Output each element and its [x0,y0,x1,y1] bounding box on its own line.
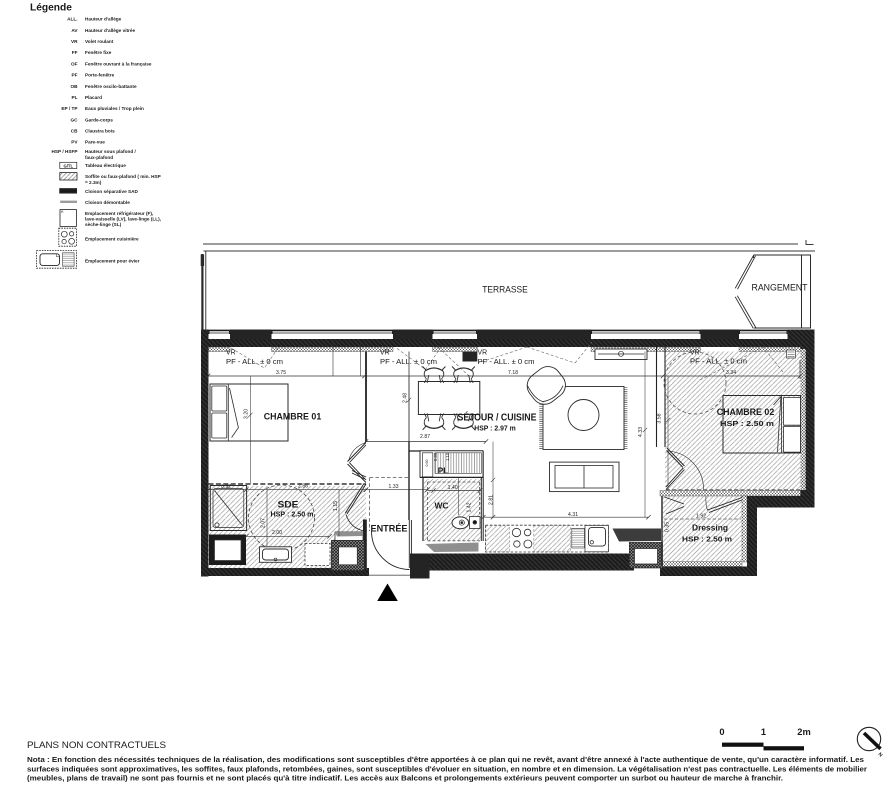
svg-text:Emplacement pour évier: Emplacement pour évier [85,258,140,263]
svg-text:Cloison démontable: Cloison démontable [85,200,130,205]
svg-text:Nota : En fonction des nécessi: Nota : En fonction des nécessités techni… [27,757,864,764]
svg-text:1.40: 1.40 [448,485,458,491]
svg-text:CHAMBRE 02: CHAMBRE 02 [717,407,775,417]
svg-text:FF: FF [72,50,78,55]
svg-text:TERRASSE: TERRASSE [482,285,528,295]
svg-text:SDE: SDE [278,500,299,510]
svg-text:2m: 2m [797,727,810,737]
svg-text:Pare-vue: Pare-vue [85,140,105,145]
svg-text:VR: VR [478,350,488,357]
svg-text:3.58: 3.58 [657,413,663,423]
svg-text:Dressing: Dressing [692,523,728,533]
svg-text:2.86: 2.86 [298,484,308,490]
svg-text:AV: AV [71,28,78,33]
svg-text:VR: VR [380,350,390,357]
svg-text:1.42: 1.42 [467,502,473,512]
svg-text:surfaces indiquées sont approx: surfaces indiquées sont approximatives, … [27,766,867,773]
svg-text:3.34: 3.34 [726,370,736,376]
svg-text:GC: GC [70,117,78,122]
svg-text:G/TL: G/TL [64,163,74,168]
svg-text:Claustra bois: Claustra bois [85,129,115,134]
svg-text:Hauteur d'allège vitrée: Hauteur d'allège vitrée [85,28,135,33]
svg-text:2.07: 2.07 [261,518,267,528]
svg-text:Fenêtre oscilo-battante: Fenêtre oscilo-battante [85,84,137,89]
svg-text:PV: PV [71,140,78,145]
svg-text:2.87: 2.87 [420,434,430,440]
svg-text:Hauteur sous plafond /: Hauteur sous plafond / [85,149,136,154]
svg-text:Fenêtre ouvrant à la française: Fenêtre ouvrant à la française [85,61,152,66]
svg-text:1.10: 1.10 [445,452,450,461]
svg-text:0.35: 0.35 [665,522,671,532]
svg-text:RANGEMENT: RANGEMENT [752,283,808,293]
svg-text:CB: CB [71,129,78,134]
svg-text:OB: OB [70,84,78,89]
svg-text:1.15: 1.15 [333,501,339,511]
svg-text:OF: OF [71,61,78,66]
svg-text:PLANS NON CONTRACTUELS: PLANS NON CONTRACTUELS [27,739,166,750]
svg-text:7.18: 7.18 [508,370,518,376]
svg-text:Cloison séparative SAD: Cloison séparative SAD [85,189,138,194]
svg-text:1.33: 1.33 [389,484,399,490]
svg-text:HSP : 2.97 m: HSP : 2.97 m [474,424,516,433]
svg-text:2.00: 2.00 [272,530,282,536]
svg-text:Volet roulant: Volet roulant [85,39,114,44]
svg-text:PF - ALL. ± 0 cm: PF - ALL. ± 0 cm [690,359,747,366]
svg-text:PF - ALL. ± 0 cm: PF - ALL. ± 0 cm [380,359,437,366]
svg-text:VR: VR [71,39,78,44]
svg-text:(meubles, plans de travail) ne: (meubles, plans de travail) ne sont pas … [27,776,783,783]
svg-text:Fenêtre fixe: Fenêtre fixe [85,50,112,55]
svg-text:PL: PL [438,467,448,476]
svg-text:HSP : 2.50 m: HSP : 2.50 m [271,510,314,519]
svg-text:0.60: 0.60 [425,460,429,467]
svg-text:Placard: Placard [85,95,102,100]
svg-text:HSP : 2.50 m: HSP : 2.50 m [720,419,774,428]
svg-text:PL: PL [72,95,78,100]
svg-text:SÉJOUR / CUISINE: SÉJOUR / CUISINE [458,411,537,424]
svg-text:CHAMBRE 01: CHAMBRE 01 [264,412,322,422]
svg-text:Emplacement réfrigérateur (F),: Emplacement réfrigérateur (F), [85,211,153,216]
svg-text:4.33: 4.33 [638,427,644,437]
svg-text:0.92: 0.92 [221,484,231,490]
svg-text:2.48: 2.48 [403,393,409,403]
svg-text:Porte-fenêtre: Porte-fenêtre [85,73,115,78]
svg-text:VR: VR [226,350,236,357]
svg-text:faux-plafond: faux-plafond [85,155,113,160]
svg-text:lave-vaisselle (LV), lave-ling: lave-vaisselle (LV), lave-linge (LL), [85,216,161,221]
svg-text:EP / TP: EP / TP [61,106,77,111]
svg-text:3.75: 3.75 [276,370,286,376]
svg-text:HSP / HSFP: HSP / HSFP [52,149,78,154]
svg-text:sèche-linge (SL): sèche-linge (SL) [85,222,122,227]
svg-text:WC: WC [435,501,449,511]
svg-text:PF: PF [72,73,78,78]
svg-text:1.92: 1.92 [696,513,706,519]
svg-text:PF - ALL. ± 0 cm: PF - ALL. ± 0 cm [226,359,283,366]
svg-text:= 2.3m): = 2.3m) [85,180,102,185]
svg-text:Emplacement cuisinière: Emplacement cuisinière [85,236,139,241]
svg-text:4.31: 4.31 [568,512,578,518]
svg-text:Légende: Légende [30,3,72,14]
svg-text:ENTRÉE: ENTRÉE [371,524,408,534]
svg-text:ALL.: ALL. [67,17,77,22]
svg-text:1: 1 [761,727,766,737]
svg-text:Eaux pluviales / Trop plein: Eaux pluviales / Trop plein [85,106,144,111]
svg-text:Tableau électrique: Tableau électrique [85,163,126,168]
svg-text:2.81: 2.81 [489,495,495,505]
svg-text:0: 0 [719,727,724,737]
svg-text:Soffite ou faux-plafond ( min.: Soffite ou faux-plafond ( min. HSP [85,174,161,179]
svg-text:Garde-corps: Garde-corps [85,117,113,122]
svg-text:Hauteur d'allège: Hauteur d'allège [85,17,122,22]
svg-text:HSP : 2.50 m: HSP : 2.50 m [682,535,732,544]
svg-text:0.85: 0.85 [433,452,438,461]
svg-text:VR: VR [690,350,700,357]
svg-text:PF - ALL. ± 0 cm: PF - ALL. ± 0 cm [478,359,535,366]
svg-text:3.20: 3.20 [244,409,250,419]
